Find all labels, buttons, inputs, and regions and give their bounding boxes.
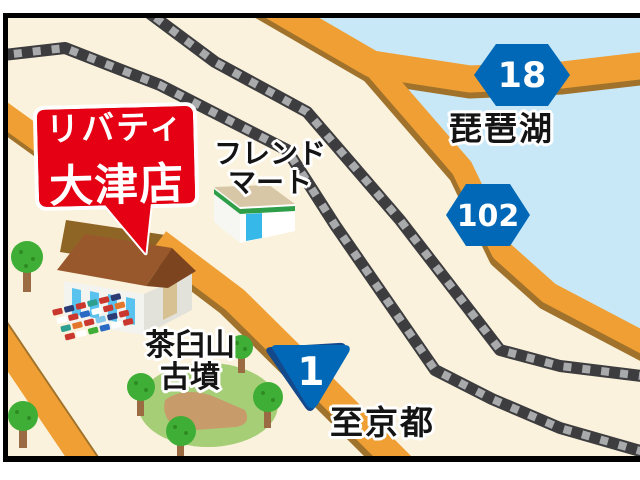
store-access-map: リバティ 大津店 フレンド マート 琵琶湖 茶臼山 古墳 至京都 18 102 … [0, 0, 640, 480]
chausuyama-kofun-label: 茶臼山 古墳 [134, 330, 246, 393]
to-kyoto-label: 至京都 [330, 406, 435, 441]
route18-number: 18 [492, 56, 552, 96]
store-branch-name: 大津店 [48, 147, 185, 215]
route102-number: 102 [450, 199, 526, 234]
route1-number: 1 [289, 350, 333, 395]
store-name: リバティ [46, 99, 185, 151]
lake-biwa-label: 琵琶湖 [449, 112, 554, 147]
friend-mart-label: フレンド マート [202, 139, 338, 198]
store-callout-label: リバティ 大津店 [35, 104, 198, 209]
